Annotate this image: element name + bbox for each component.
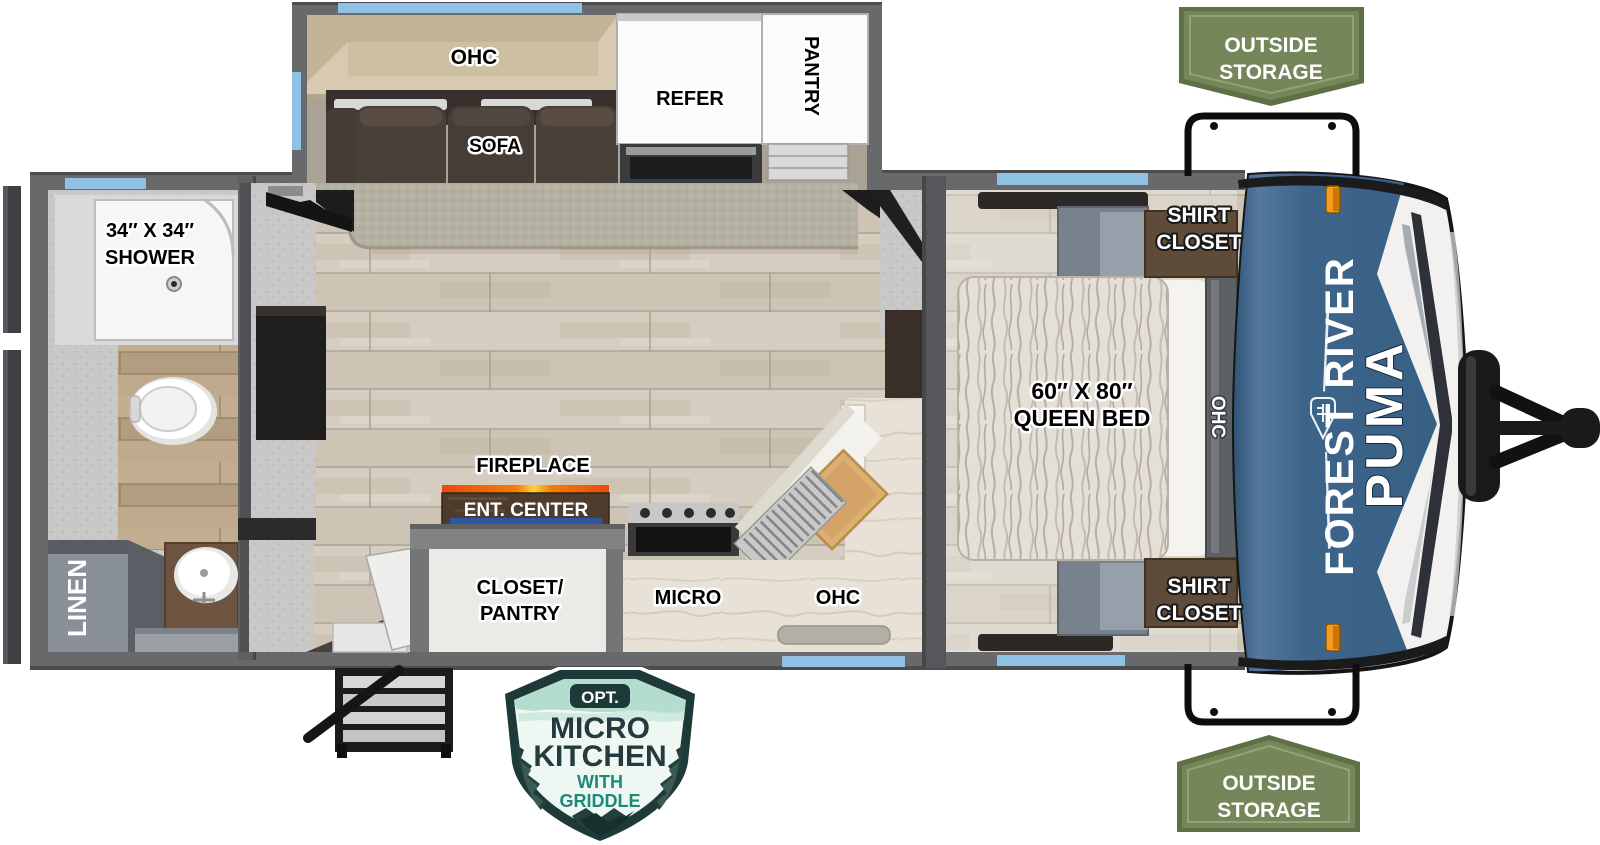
svg-text:60″ X 80″: 60″ X 80″ xyxy=(1031,378,1132,404)
svg-text:KITCHEN: KITCHEN xyxy=(533,740,666,773)
svg-text:ENT. CENTER: ENT. CENTER xyxy=(464,500,589,521)
svg-text:CLOSET: CLOSET xyxy=(1156,231,1241,254)
svg-text:34″ X 34″: 34″ X 34″ xyxy=(106,220,195,242)
svg-text:SHIRT: SHIRT xyxy=(1168,575,1231,598)
svg-text:OUTSIDE: OUTSIDE xyxy=(1224,34,1317,57)
svg-text:STORAGE: STORAGE xyxy=(1217,799,1320,822)
svg-text:OHC: OHC xyxy=(1207,396,1228,439)
svg-text:MICRO: MICRO xyxy=(655,587,722,609)
svg-text:STORAGE: STORAGE xyxy=(1219,61,1322,84)
svg-text:QUEEN BED: QUEEN BED xyxy=(1014,405,1151,431)
svg-text:SHIRT: SHIRT xyxy=(1168,204,1231,227)
svg-text:LINEN: LINEN xyxy=(62,559,92,637)
svg-text:OPT.: OPT. xyxy=(581,688,619,707)
svg-text:PANTRY: PANTRY xyxy=(480,603,561,625)
svg-text:FIREPLACE: FIREPLACE xyxy=(476,455,589,477)
svg-text:CLOSET: CLOSET xyxy=(1156,602,1241,625)
svg-text:SOFA: SOFA xyxy=(469,136,521,157)
svg-text:PUMA: PUMA xyxy=(1356,339,1414,508)
svg-text:OUTSIDE: OUTSIDE xyxy=(1222,772,1315,795)
svg-text:PANTRY: PANTRY xyxy=(800,36,822,117)
svg-text:OHC: OHC xyxy=(451,46,498,69)
svg-text:CLOSET/: CLOSET/ xyxy=(477,577,564,599)
svg-text:OHC: OHC xyxy=(816,587,860,609)
svg-text:WITH: WITH xyxy=(577,772,623,792)
svg-text:GRIDDLE: GRIDDLE xyxy=(560,791,641,811)
svg-text:SHOWER: SHOWER xyxy=(105,247,196,269)
svg-text:REFER: REFER xyxy=(656,88,724,110)
